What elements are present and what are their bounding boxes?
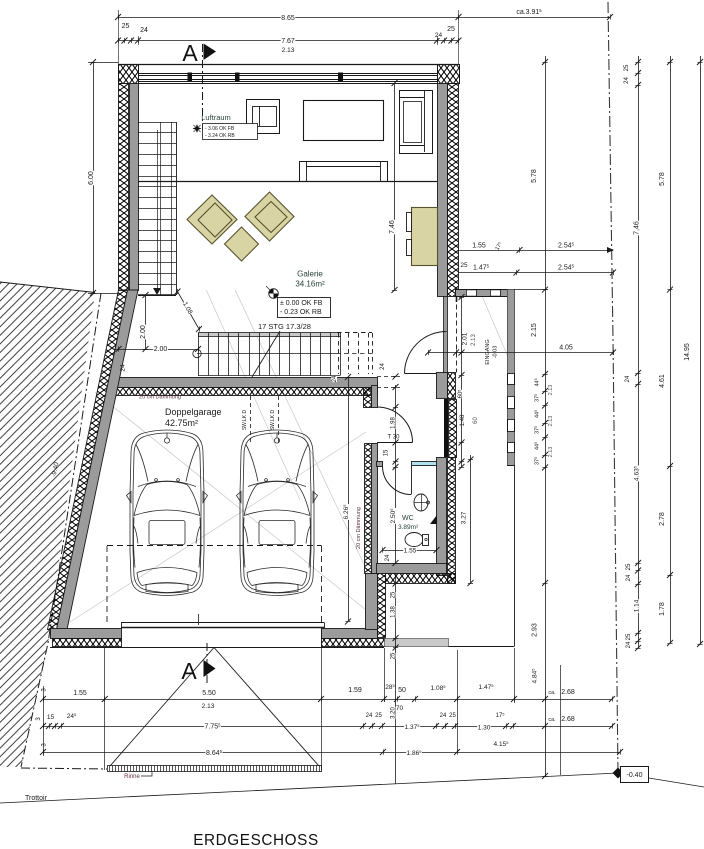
svg-text:25: 25	[449, 713, 456, 719]
svg-text:1.59: 1.59	[348, 687, 362, 694]
svg-text:24: 24	[120, 364, 127, 372]
svg-text:1.55: 1.55	[472, 243, 486, 250]
svg-text:Luftraum: Luftraum	[201, 113, 231, 122]
svg-text:25: 25	[391, 591, 397, 598]
svg-text:WC: WC	[402, 515, 414, 522]
svg-text:± 0.00 OK FB: ± 0.00 OK FB	[280, 300, 323, 307]
svg-text:24: 24	[626, 574, 632, 581]
svg-text:24: 24	[435, 32, 443, 39]
svg-text:- 3.24 OK RB: - 3.24 OK RB	[205, 133, 235, 139]
svg-text:2.13: 2.13	[548, 385, 554, 396]
svg-text:15: 15	[47, 714, 55, 721]
svg-text:ca.3.915: ca.3.915	[516, 8, 542, 16]
svg-text:2.93: 2.93	[532, 623, 539, 637]
svg-text:3.27: 3.27	[461, 511, 468, 524]
svg-text:1.78: 1.78	[659, 602, 666, 616]
svg-text:24: 24	[440, 713, 447, 719]
svg-text:3.89m²: 3.89m²	[398, 524, 419, 531]
svg-text:5.78: 5.78	[531, 169, 538, 183]
svg-text:A: A	[182, 40, 198, 66]
svg-text:2.13: 2.13	[548, 447, 554, 458]
svg-text:7,46: 7,46	[634, 221, 641, 235]
svg-text:SW.LK D: SW.LK D	[270, 409, 276, 430]
svg-text:Galerie: Galerie	[297, 270, 323, 279]
svg-text:6.00: 6.00	[88, 171, 95, 185]
svg-text:24: 24	[380, 363, 386, 370]
svg-text:2.13: 2.13	[548, 416, 554, 427]
svg-text:24: 24	[366, 713, 373, 719]
svg-text:25: 25	[460, 262, 468, 269]
svg-text:17 STG 17.3/28: 17 STG 17.3/28	[258, 322, 311, 331]
svg-text:SW.LK D: SW.LK D	[242, 409, 248, 430]
svg-text:1.38: 1.38	[391, 606, 397, 618]
svg-text:2.78: 2.78	[659, 512, 666, 526]
svg-text:2.00: 2.00	[140, 325, 147, 339]
svg-text:ca.: ca.	[548, 717, 556, 723]
svg-text:15: 15	[384, 449, 390, 456]
svg-text:7.67: 7.67	[281, 38, 295, 45]
svg-text:4.61: 4.61	[659, 374, 666, 388]
svg-text:-0.03: -0.03	[493, 346, 499, 359]
svg-text:Rinne: Rinne	[124, 774, 140, 780]
svg-text:70: 70	[396, 705, 404, 712]
svg-text:24: 24	[332, 375, 338, 382]
svg-text:EINGANG: EINGANG	[485, 339, 491, 364]
svg-text:24: 24	[626, 641, 632, 648]
svg-text:25: 25	[391, 652, 397, 659]
svg-text:Doppelgarage: Doppelgarage	[165, 407, 222, 417]
svg-text:8.65: 8.65	[281, 15, 295, 22]
svg-text:-0.40: -0.40	[627, 772, 643, 779]
svg-text:24: 24	[625, 375, 631, 382]
svg-text:1.55: 1.55	[404, 548, 417, 555]
svg-text:2.13: 2.13	[202, 703, 215, 710]
svg-text:25: 25	[122, 23, 130, 30]
svg-text:2.13: 2.13	[471, 334, 477, 346]
svg-text:2.68: 2.68	[561, 689, 575, 696]
svg-text:Trottoir: Trottoir	[25, 795, 48, 802]
svg-text:2.01: 2.01	[462, 332, 469, 345]
svg-text:1.48: 1.48	[460, 414, 466, 426]
svg-text:24: 24	[385, 554, 391, 561]
svg-text:5.50: 5.50	[202, 690, 216, 697]
svg-text:20 cm Dämmung: 20 cm Dämmung	[356, 507, 362, 549]
svg-text:2.68: 2.68	[561, 716, 575, 723]
svg-text:A: A	[181, 658, 197, 684]
svg-text:5.78: 5.78	[659, 172, 666, 186]
svg-text:4.05: 4.05	[559, 345, 573, 352]
svg-text:50: 50	[398, 687, 406, 694]
svg-text:ca.: ca.	[548, 690, 556, 696]
svg-text:20 cm Dämmung: 20 cm Dämmung	[139, 395, 181, 401]
svg-text:24: 24	[624, 77, 630, 84]
svg-text:2.00: 2.00	[154, 346, 168, 353]
svg-text:42.75m²: 42.75m²	[165, 418, 198, 428]
svg-text:14.95: 14.95	[684, 343, 691, 361]
svg-text:- 0.23 OK RB: - 0.23 OK RB	[280, 309, 322, 316]
svg-text:- 3.06 OK FB: - 3.06 OK FB	[205, 126, 235, 132]
svg-text:25: 25	[624, 64, 630, 71]
svg-text:34.16m²: 34.16m²	[295, 280, 325, 289]
svg-text:25: 25	[447, 26, 455, 33]
svg-text:25: 25	[626, 563, 632, 570]
svg-text:2.15: 2.15	[531, 323, 538, 337]
svg-text:1.55: 1.55	[73, 690, 87, 697]
svg-text:ERDGESCHOSS: ERDGESCHOSS	[193, 832, 319, 849]
svg-text:1.98: 1.98	[391, 417, 397, 429]
svg-text:1.14: 1.14	[634, 599, 641, 612]
svg-text:25: 25	[626, 633, 632, 640]
svg-text:2.13: 2.13	[282, 47, 295, 54]
svg-text:60: 60	[473, 417, 479, 424]
svg-text:25: 25	[375, 713, 382, 719]
svg-text:7,46: 7,46	[389, 220, 396, 234]
svg-text:24: 24	[140, 27, 148, 34]
svg-text:1.30: 1.30	[478, 725, 491, 732]
